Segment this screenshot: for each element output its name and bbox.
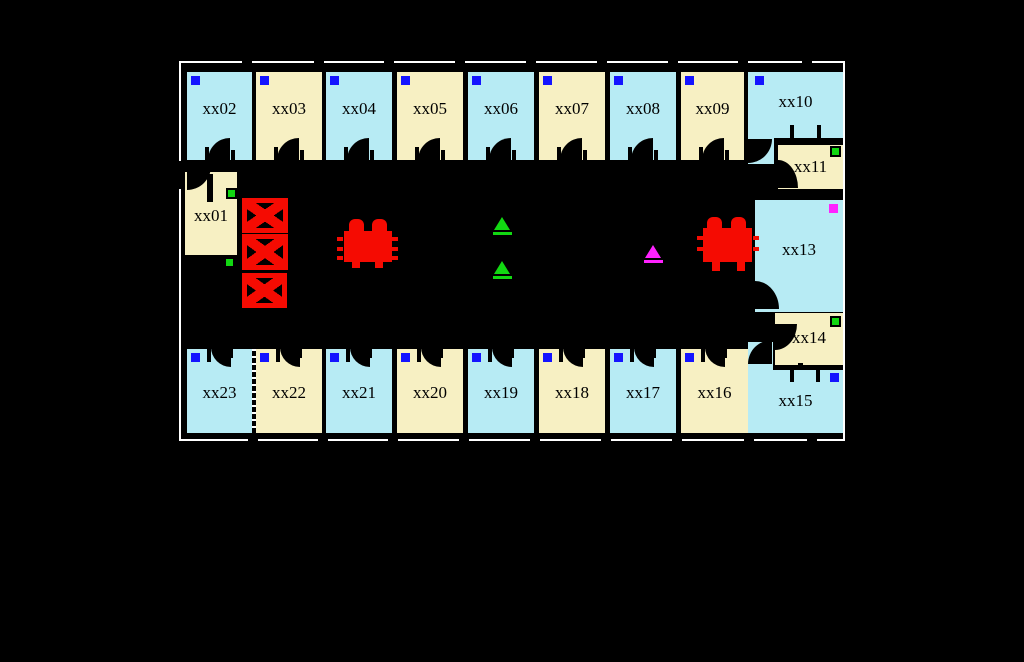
table-left-foot (375, 262, 383, 268)
window-stub-bottom (672, 433, 682, 446)
table-right-chair (731, 217, 746, 231)
table-left-tick (337, 247, 343, 251)
door-jamb (630, 349, 634, 362)
table-right-top (703, 228, 752, 262)
window-stub-bottom (744, 433, 754, 446)
marker-green-triangle (494, 217, 510, 230)
table-left-chair (372, 219, 387, 233)
window-stub-top (314, 56, 324, 68)
window-stub-bottom (318, 433, 328, 446)
elevator-symbol (242, 198, 288, 233)
marker-blue-square (614, 353, 623, 362)
corridor-opening-left (175, 161, 183, 189)
table-right-tick (753, 247, 759, 251)
room-label: xx08 (610, 100, 676, 118)
room-label: xx05 (397, 100, 463, 118)
dashed-partition-wall (252, 349, 256, 433)
room-label: xx19 (468, 384, 534, 402)
door-jamb (559, 349, 563, 362)
room-label: xx15 (748, 392, 843, 410)
room-label: xx07 (539, 100, 605, 118)
marker-green-square (830, 146, 841, 157)
marker-blue-square (472, 76, 481, 85)
table-right-foot (737, 262, 745, 271)
door-jamb (300, 150, 304, 160)
wall-stub (790, 125, 794, 140)
door-jamb (654, 150, 658, 160)
room-label: xx09 (681, 100, 744, 118)
floor-plan-canvas: xx01xx02xx03xx04xx05xx06xx07xx08xx09xx10… (0, 0, 1024, 662)
door-jamb (207, 349, 211, 362)
room-label: xx20 (397, 384, 463, 402)
room-label: xx01 (185, 207, 237, 225)
room-label: xx03 (256, 100, 322, 118)
door-jamb (417, 349, 421, 362)
room-xx15: xx15 (748, 370, 843, 433)
room-label: xx06 (468, 100, 534, 118)
room-label: xx18 (539, 384, 605, 402)
marker-green-triangle-base (493, 276, 512, 279)
table-left-tick (392, 256, 398, 260)
marker-blue-square (191, 353, 200, 362)
window-stub-bottom (807, 433, 817, 446)
table-left-tick (337, 237, 343, 241)
marker-green-triangle-base (493, 232, 512, 235)
marker-green-square (224, 257, 235, 268)
window-stub-bottom (388, 433, 398, 446)
window-stub-top (668, 56, 678, 68)
marker-blue-square (830, 373, 839, 382)
table-left-chair (349, 219, 364, 233)
elevator-symbol (242, 273, 287, 308)
marker-blue-square (543, 353, 552, 362)
marker-blue-square (472, 353, 481, 362)
door-jamb (488, 349, 492, 362)
marker-blue-square (260, 76, 269, 85)
marker-blue-square (401, 353, 410, 362)
table-right-chair (707, 217, 722, 231)
door-jamb (583, 150, 587, 160)
door-jamb (276, 349, 280, 362)
window-stub-top (597, 56, 607, 68)
window-stub-top (802, 56, 812, 68)
marker-magenta-triangle-base (644, 260, 663, 263)
marker-blue-square (755, 76, 764, 85)
table-right-tick (697, 247, 703, 251)
marker-blue-square (191, 76, 200, 85)
room-label: xx10 (748, 93, 843, 111)
room-label: xx21 (326, 384, 392, 402)
window-stub-top (526, 56, 536, 68)
room-label: xx02 (187, 100, 252, 118)
window-stub-bottom (459, 433, 469, 446)
marker-magenta-triangle (645, 245, 661, 258)
marker-blue-square (685, 76, 694, 85)
wall-stub (817, 125, 821, 140)
wall-stub (816, 368, 820, 382)
door-jamb (512, 150, 516, 160)
marker-blue-square (401, 76, 410, 85)
door-jamb (231, 150, 235, 160)
wall-stub (790, 368, 794, 382)
window-stub-top (455, 56, 465, 68)
window-stub-bottom (601, 433, 611, 446)
door-jamb (441, 150, 445, 160)
window-stub-bottom (248, 433, 258, 446)
door-jamb (725, 150, 729, 160)
marker-blue-square (543, 76, 552, 85)
room-label: xx04 (326, 100, 392, 118)
marker-green-triangle (494, 261, 510, 274)
table-left-tick (392, 247, 398, 251)
room-label: xx17 (610, 384, 676, 402)
marker-blue-square (330, 353, 339, 362)
window-stub-top (738, 56, 748, 68)
marker-blue-square (260, 353, 269, 362)
marker-blue-square (330, 76, 339, 85)
table-left-tick (337, 256, 343, 260)
marker-green-square (226, 188, 237, 199)
window-stub-top (384, 56, 394, 68)
window-stub-bottom (530, 433, 540, 446)
room-label: xx22 (256, 384, 322, 402)
table-right-tick (753, 236, 759, 240)
marker-blue-square (685, 353, 694, 362)
room-label: xx23 (187, 384, 252, 402)
table-left-tick (392, 237, 398, 241)
table-right-foot (712, 262, 720, 271)
door-jamb (346, 349, 350, 362)
door-jamb (370, 150, 374, 160)
elevator-symbol (242, 234, 288, 270)
room-label: xx16 (681, 384, 748, 402)
marker-blue-square (614, 76, 623, 85)
marker-magenta-square (829, 204, 838, 213)
room-label: xx13 (755, 241, 843, 259)
door-jamb (701, 349, 705, 362)
window-stub-top (242, 56, 252, 68)
table-left-foot (352, 262, 360, 268)
marker-green-square (830, 316, 841, 327)
table-right-tick (697, 236, 703, 240)
wall-stub (207, 174, 213, 202)
table-left-top (344, 231, 392, 262)
